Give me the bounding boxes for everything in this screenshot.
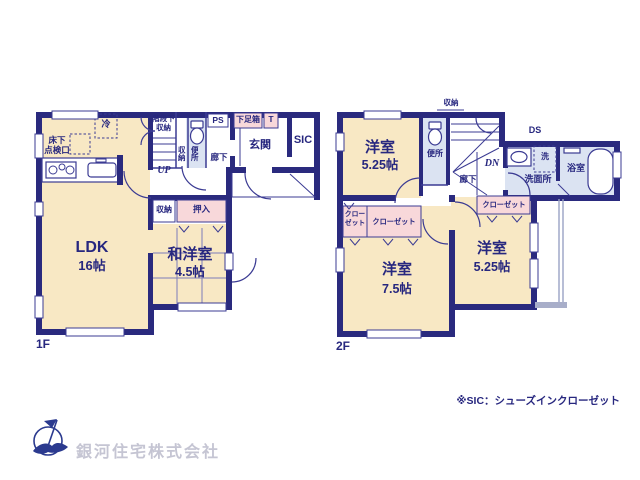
hallway-1f-label: 廊下 — [205, 153, 233, 162]
oshiire-label: 押入 — [177, 205, 226, 214]
closet-1f-label: 収納 — [153, 206, 175, 215]
stairs-up-label: UP — [153, 165, 175, 176]
washer-space-label: 洗 — [537, 153, 553, 162]
room-a-size-label: 5.25帖 — [352, 159, 408, 173]
washitsu-size-label: 4.5帖 — [159, 266, 221, 280]
hall-closet-label: 収納 — [177, 146, 185, 161]
company-name: 銀河住宅株式会社 — [76, 444, 316, 462]
room-a-label: 洋室 — [352, 140, 408, 157]
toilet-2f-label: 便所 — [422, 150, 448, 159]
washroom-label: 洗面所 — [514, 175, 562, 185]
understairs-storage-label-2: 収納 — [150, 124, 177, 132]
closet-a-label: クローゼット — [478, 201, 530, 209]
floor2-label: 2F — [336, 340, 358, 353]
room-b-label: 洋室 — [367, 262, 427, 279]
duct-space-label: DS — [524, 126, 546, 136]
stairs-down-label: DN — [481, 158, 503, 169]
washitsu-label: 和洋室 — [159, 247, 221, 264]
room-b-size-label: 7.5帖 — [367, 283, 427, 297]
entrance-label: 玄関 — [239, 139, 281, 151]
fridge-space-label: 冷 — [95, 120, 117, 130]
floorplan-page: 冷 床下 点検口 階段下 収納 UP 収納 便所 PS 廊下 下足箱 T 玄関 … — [0, 0, 640, 480]
sic-label: SIC — [289, 134, 317, 146]
storage-2f-label: 収納 — [437, 99, 465, 107]
ldk-label: LDK — [62, 239, 122, 257]
closet-b-label-1: クロー — [343, 211, 367, 218]
pipe-space-label: PS — [208, 116, 228, 125]
room-c-size-label: 5.25帖 — [461, 261, 523, 275]
understairs-storage-label-1: 階段下 — [150, 115, 177, 123]
room-c-label: 洋室 — [461, 241, 523, 258]
closet-b-label-2: ゼット — [343, 220, 367, 227]
floor1-label: 1F — [36, 338, 58, 351]
shoe-box-t-label: T — [264, 115, 278, 124]
underfloor-hatch-label-1: 床下 — [44, 136, 70, 145]
toilet-1f-label: 便所 — [190, 146, 198, 161]
bathroom-label: 浴室 — [561, 164, 591, 174]
ldk-size-label: 16帖 — [62, 259, 122, 273]
underfloor-hatch-label-2: 点検口 — [40, 146, 74, 155]
shoe-box-label: 下足箱 — [234, 116, 262, 125]
hallway-2f-label: 廊下 — [453, 175, 483, 184]
sic-note: ※SIC：シューズインクローゼット — [420, 396, 620, 408]
closet-c-label: クローゼット — [367, 218, 421, 226]
company-logo — [33, 419, 68, 455]
